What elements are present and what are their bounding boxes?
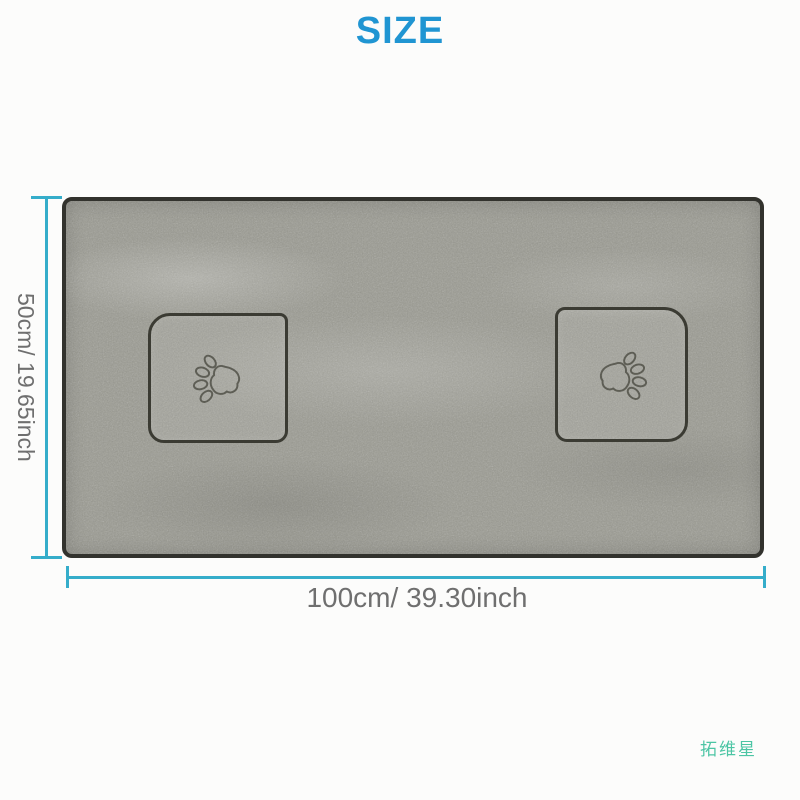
- width-label: 100cm/ 39.30inch: [68, 582, 766, 614]
- paw-print-icon: [189, 349, 247, 407]
- brand-watermark: 拓维星: [700, 735, 757, 760]
- paw-print-icon: [593, 346, 651, 404]
- size-diagram-page: SIZE: [0, 0, 800, 800]
- page-title: SIZE: [0, 10, 800, 53]
- towel-pocket-right: [555, 307, 688, 442]
- height-label: 50cm/ 19.65inch: [1, 197, 39, 558]
- width-dimension-line-shaft: [68, 576, 766, 579]
- towel-image: [62, 197, 764, 558]
- height-dimension-line-shaft: [45, 197, 48, 558]
- towel-pocket-left: [148, 313, 288, 443]
